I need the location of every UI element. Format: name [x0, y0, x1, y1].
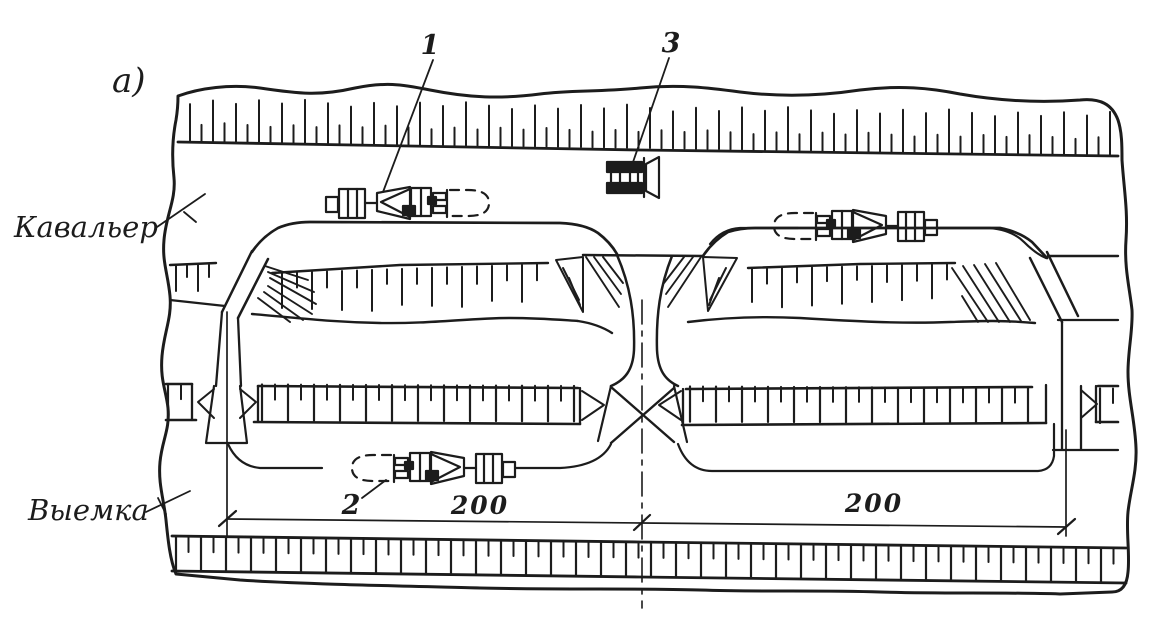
- ramp-corner-hatching: [258, 266, 316, 322]
- right-excavation-pit: [688, 228, 1118, 449]
- neck-left-wedge: [586, 257, 623, 307]
- left-pit-end-wedge: [556, 257, 583, 312]
- top-slope-band: [178, 100, 1118, 156]
- leader-cavalier: [157, 194, 205, 227]
- dimension-right: 200: [844, 489, 903, 518]
- right-ramp: [1030, 252, 1078, 449]
- excavation-label: Выемка: [27, 493, 149, 527]
- right-pit-end-hatching: [952, 263, 1030, 322]
- right-pit-slope-hatching: [752, 264, 947, 307]
- left-ramp: [216, 251, 268, 386]
- right-pit-start-wedge: [703, 257, 737, 311]
- left-excavation-pit: [170, 222, 617, 386]
- leader-excavation: [146, 491, 190, 514]
- right-band-opening: [1046, 385, 1118, 450]
- left-pit-slope-hatching: [282, 264, 537, 311]
- scraper-icon: [326, 187, 489, 219]
- leader-callout-1: [383, 60, 433, 192]
- dimension-left: 200: [450, 491, 509, 520]
- cavalier-road-right: [710, 228, 1046, 258]
- left-pit-toe-line: [252, 314, 612, 333]
- callout-2: 2: [341, 490, 361, 521]
- top-slope-hatching: [190, 100, 1110, 155]
- right-pit-toe-line: [688, 317, 1035, 323]
- callout-3: 3: [662, 28, 681, 59]
- scraper-icon: [774, 210, 937, 242]
- earthworks-diagram: а) 1 3 2 Кавальер Выемка 200 200: [0, 0, 1153, 618]
- scraper-bowl-ghost: [450, 190, 489, 216]
- panel-label: а): [112, 61, 146, 101]
- scraper-icon: [352, 452, 515, 484]
- left-edge-band: [170, 263, 225, 306]
- left-band-opening: [192, 384, 258, 443]
- leader-callout-2: [362, 480, 386, 498]
- cavalier-label: Кавальер: [13, 210, 158, 244]
- callout-1: 1: [421, 30, 440, 61]
- haul-road: [228, 424, 1054, 471]
- bottom-slope-band: [172, 536, 1126, 583]
- diagram-canvas: а) 1 3 2 Кавальер Выемка 200 200: [0, 0, 1153, 618]
